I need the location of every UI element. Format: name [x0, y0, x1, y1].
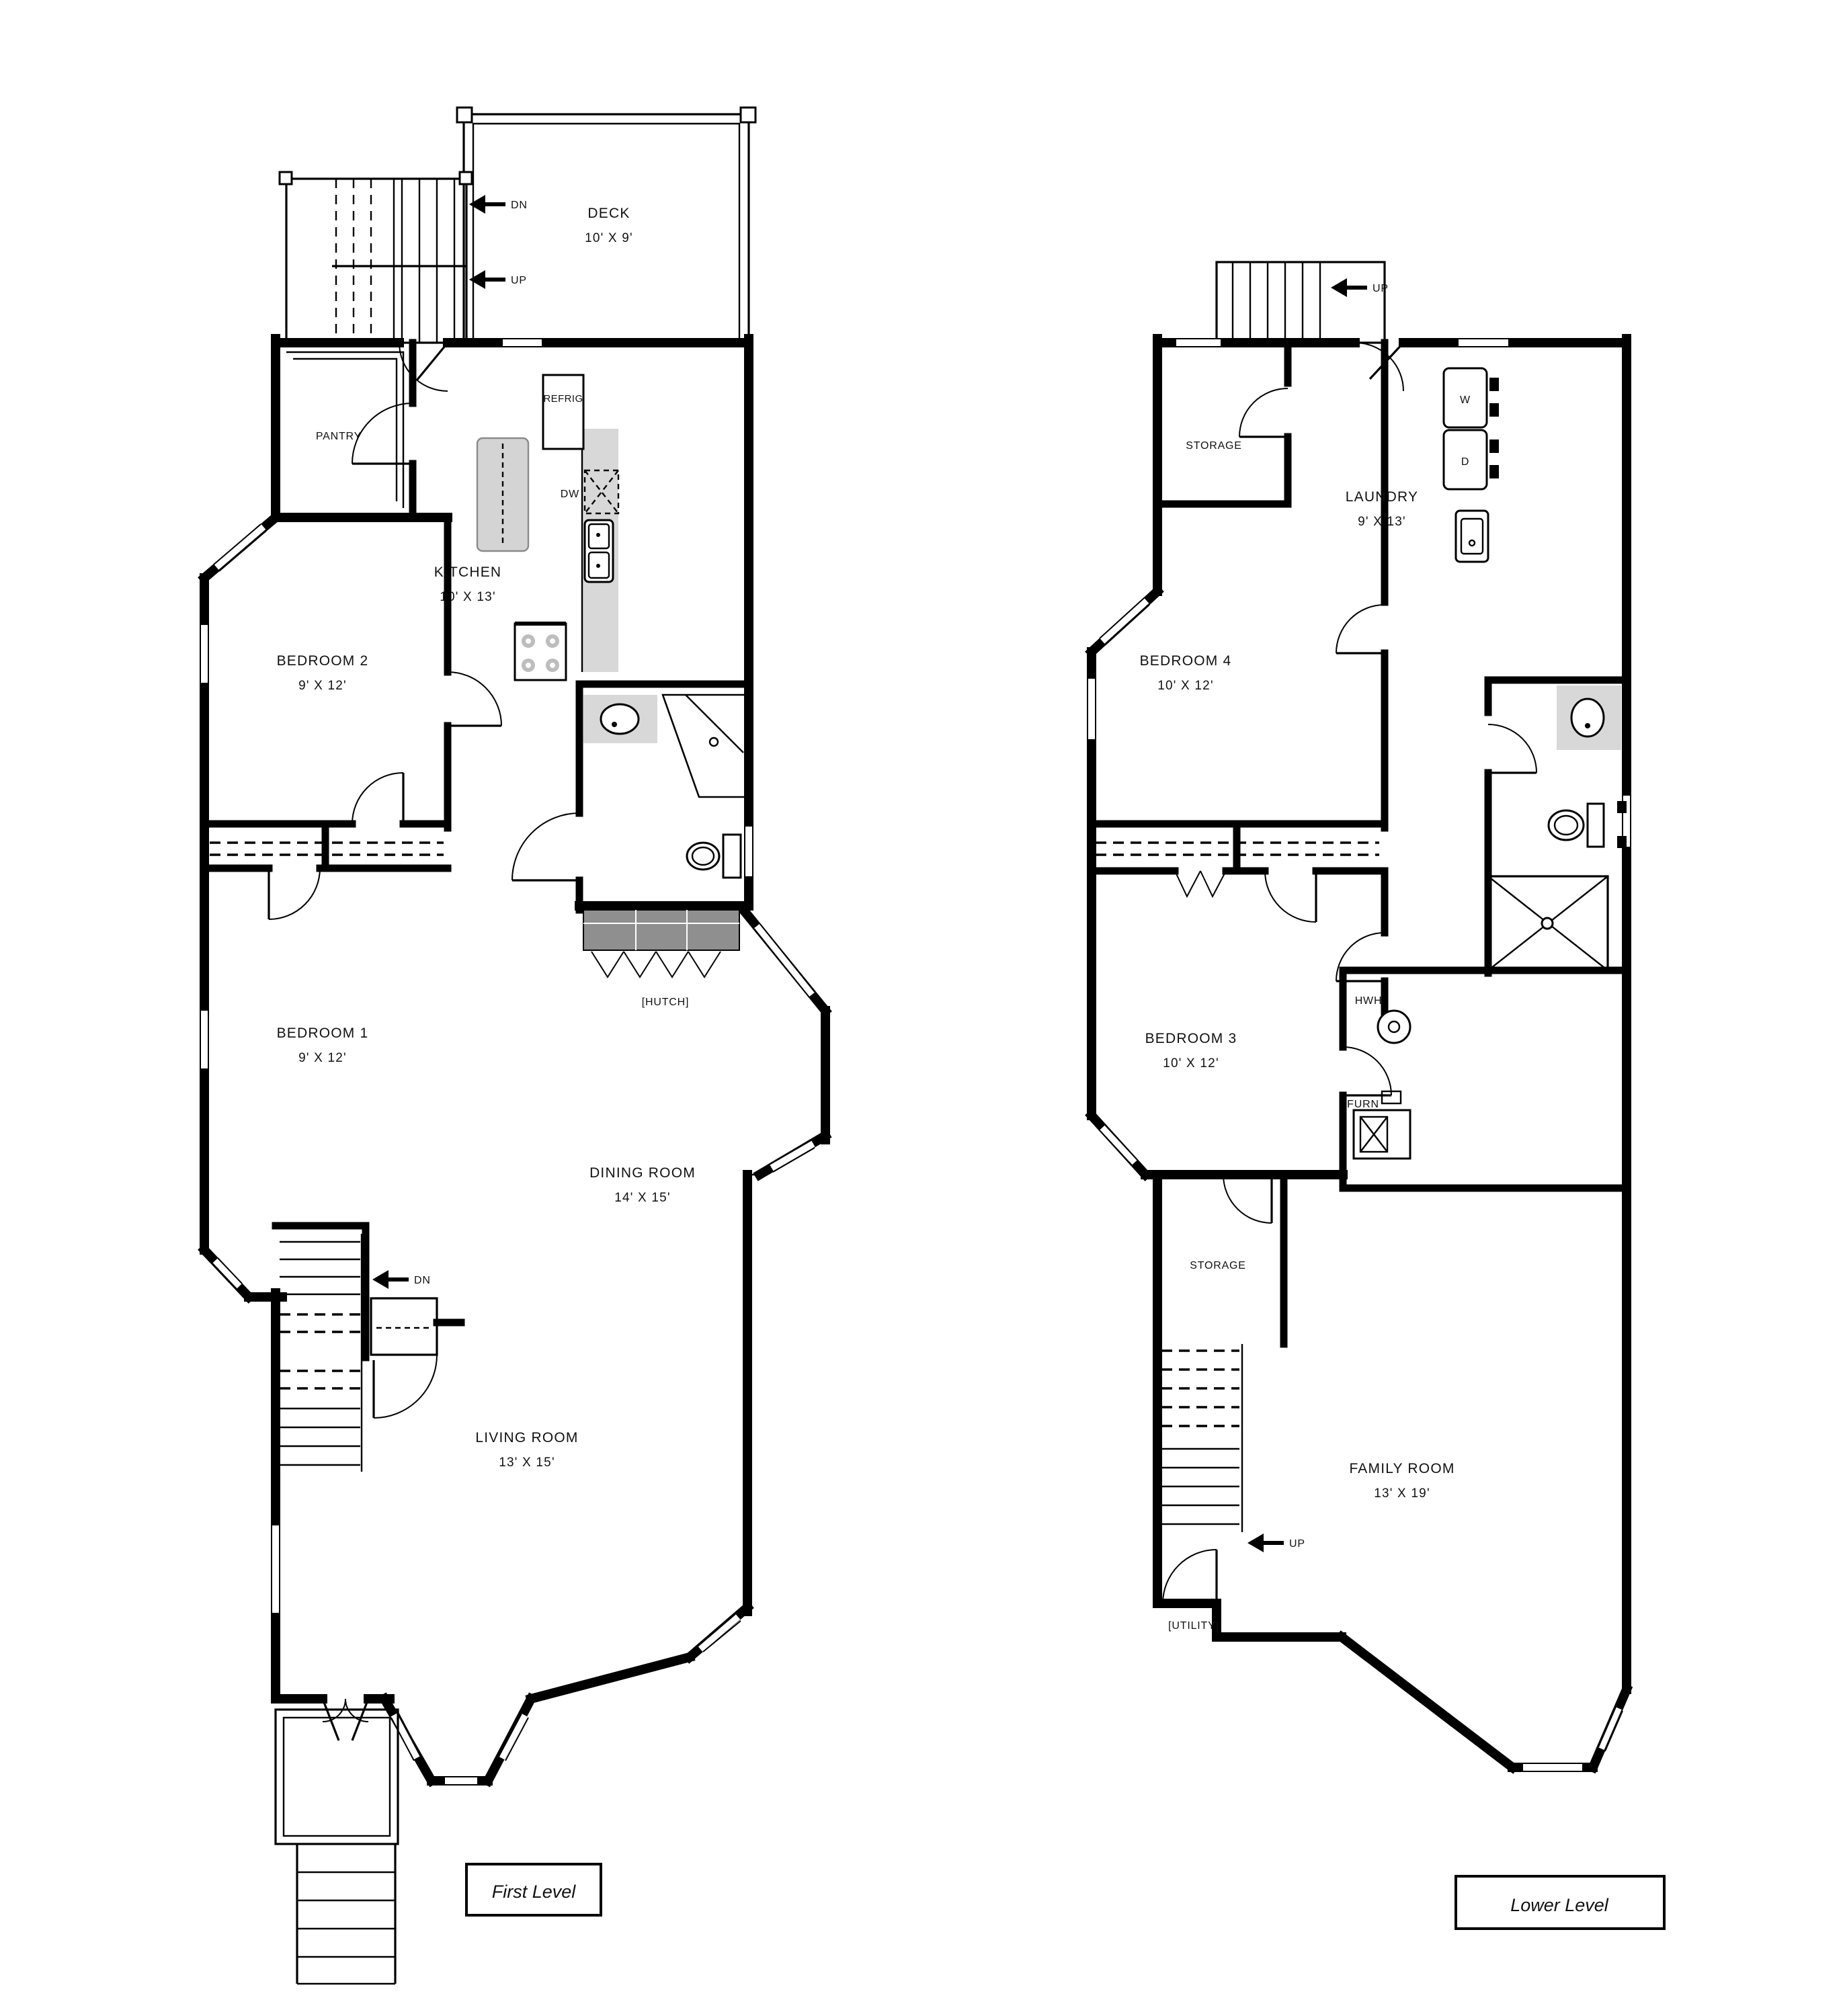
- lower-closets: [1092, 824, 1385, 922]
- family-room-label: FAMILY ROOM: [1349, 1461, 1455, 1476]
- dryer-label: D: [1461, 456, 1469, 468]
- stairs-dn-label: DN: [414, 1275, 431, 1286]
- lower-level-caption-text: Lower Level: [1510, 1895, 1609, 1915]
- interior-stairs-first: DN: [276, 1226, 461, 1472]
- stairs-dn-arrow-icon: [372, 1270, 409, 1289]
- lower-level-windows: [1088, 339, 1631, 1771]
- storage-upper-label: STORAGE: [1186, 440, 1242, 452]
- bedroom3-size: 10' X 12': [1163, 1056, 1219, 1070]
- deck: DECK 10' X 9': [457, 108, 755, 343]
- storage-upper-room: STORAGE: [1157, 343, 1288, 504]
- pantry-label: PANTRY: [316, 431, 362, 442]
- lower-level-caption: Lower Level: [1456, 1876, 1664, 1929]
- storage-lower-room: STORAGE UP [UTILITY]: [1161, 1175, 1305, 1632]
- laundry-size: 9' X 13': [1358, 515, 1406, 529]
- lower-level-plan: UP: [1088, 262, 1664, 1929]
- bathroom-first: [512, 684, 753, 910]
- living-size: 13' X 15': [499, 1456, 555, 1470]
- lower-up-top-label: UP: [1373, 283, 1389, 294]
- bedroom4-label: BEDROOM 4: [1140, 653, 1232, 669]
- laundry-room: W D LAUNDRY 9' X 13': [1336, 343, 1499, 828]
- floor-plan-drawing: DECK 10' X 9' DN UP: [0, 0, 1843, 2016]
- deck-up-arrow-icon: [469, 270, 505, 289]
- bedroom4-size: 10' X 12': [1157, 679, 1214, 693]
- kitchen: REFRIG DW: [434, 375, 618, 680]
- dining-size: 14' X 15': [614, 1191, 671, 1205]
- deck-size: 10' X 9': [585, 231, 633, 245]
- lower-up-bottom-arrow-icon: [1247, 1534, 1284, 1552]
- front-entry: [323, 1699, 368, 1740]
- hwh-label: HWH: [1355, 995, 1383, 1007]
- toilet: [687, 835, 741, 878]
- deck-dn-label: DN: [511, 200, 528, 211]
- washer-label: W: [1460, 394, 1471, 406]
- first-level-caption: First Level: [466, 1864, 601, 1915]
- bedroom1-label: BEDROOM 1: [277, 1025, 369, 1041]
- dw-label: DW: [561, 489, 579, 500]
- first-level-windows: [200, 339, 815, 1785]
- first-level-plan: DECK 10' X 9' DN UP: [200, 108, 825, 1984]
- kitchen-entry-door: [399, 343, 448, 391]
- bedroom2-size: 9' X 12': [298, 679, 347, 693]
- first-level-walls: [204, 339, 825, 1781]
- stove: [515, 624, 566, 680]
- dining-label: DINING ROOM: [589, 1165, 696, 1181]
- deck-stairs: DN UP: [280, 172, 528, 343]
- deck-label: DECK: [587, 206, 630, 221]
- laundry-sink: [1456, 511, 1488, 562]
- toilet-lower: [1549, 801, 1627, 848]
- kitchen-sink: [585, 520, 613, 582]
- first-level-caption-text: First Level: [492, 1882, 577, 1902]
- storage-lower-label: STORAGE: [1190, 1260, 1246, 1271]
- shower-lower: [1488, 876, 1608, 970]
- bedroom1-size: 9' X 12': [298, 1051, 347, 1065]
- lower-stairs-door: [1355, 343, 1403, 391]
- deck-dn-arrow-icon: [469, 195, 505, 214]
- pantry: PANTRY: [286, 343, 413, 517]
- hutch: [HUTCH]: [583, 910, 739, 1008]
- porch: [276, 1710, 398, 1984]
- lower-top-stairs: UP: [1217, 262, 1389, 343]
- lower-up-top-arrow-icon: [1331, 278, 1367, 297]
- deck-up-label: UP: [511, 275, 527, 286]
- lower-up-bottom-label: UP: [1289, 1538, 1305, 1550]
- refrig-label: REFRIG: [543, 393, 583, 405]
- utility-label: [UTILITY]: [1168, 1620, 1219, 1632]
- lower-level-walls: [1092, 339, 1627, 1767]
- bedroom3-label: BEDROOM 3: [1145, 1031, 1237, 1046]
- floor-plan-page: DECK 10' X 9' DN UP: [0, 0, 1843, 2016]
- bathroom-lower: [1488, 680, 1627, 973]
- living-label: LIVING ROOM: [475, 1430, 578, 1445]
- furn-label: FURN: [1347, 1099, 1379, 1110]
- family-room-size: 13' X 19': [1374, 1486, 1430, 1501]
- laundry-label: LAUNDRY: [1346, 489, 1418, 505]
- hutch-label: [HUTCH]: [642, 997, 689, 1008]
- bedroom2-label: BEDROOM 2: [277, 653, 369, 669]
